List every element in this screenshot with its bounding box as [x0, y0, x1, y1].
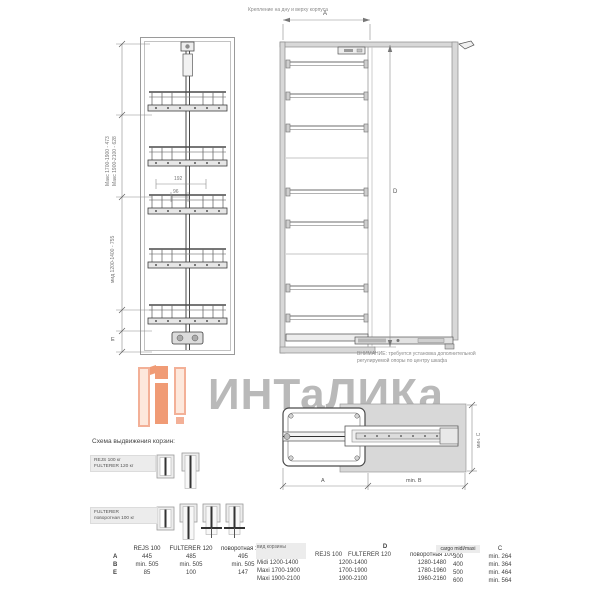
- top-view-dim-c: [467, 402, 477, 474]
- shelf-side-6: [286, 284, 368, 292]
- shelf-side-4: [286, 188, 368, 196]
- side-dim-a: [283, 18, 370, 40]
- icon-basket-closed-2: [157, 507, 174, 530]
- icon-basket-closed-1: [157, 455, 174, 478]
- icon-basket-rotating-2: [224, 504, 245, 538]
- shelf-side-1: [286, 60, 368, 68]
- icon-basket-extended-2: [180, 504, 197, 540]
- top-bracket: [338, 47, 365, 54]
- technical-sheet: ИНТаЛИКа: [0, 0, 600, 600]
- icon-basket-extended-1: [182, 453, 199, 489]
- shelf-side-3: [286, 124, 368, 132]
- front-view-drawing: [116, 38, 235, 356]
- bottom-runner: [172, 332, 203, 344]
- shelf-side-7: [286, 314, 368, 322]
- technical-drawing: [0, 0, 600, 600]
- telescopic-slide: [345, 426, 458, 446]
- scheme-icons: [157, 453, 245, 540]
- shelf-side-2: [286, 92, 368, 100]
- top-view-drawing: [280, 402, 477, 490]
- side-dim-d: [374, 45, 396, 347]
- side-view-drawing: [280, 18, 474, 353]
- icon-basket-rotating-1: [201, 504, 222, 538]
- wall-hook-icon: [459, 41, 474, 49]
- shelf-side-5: [286, 220, 368, 228]
